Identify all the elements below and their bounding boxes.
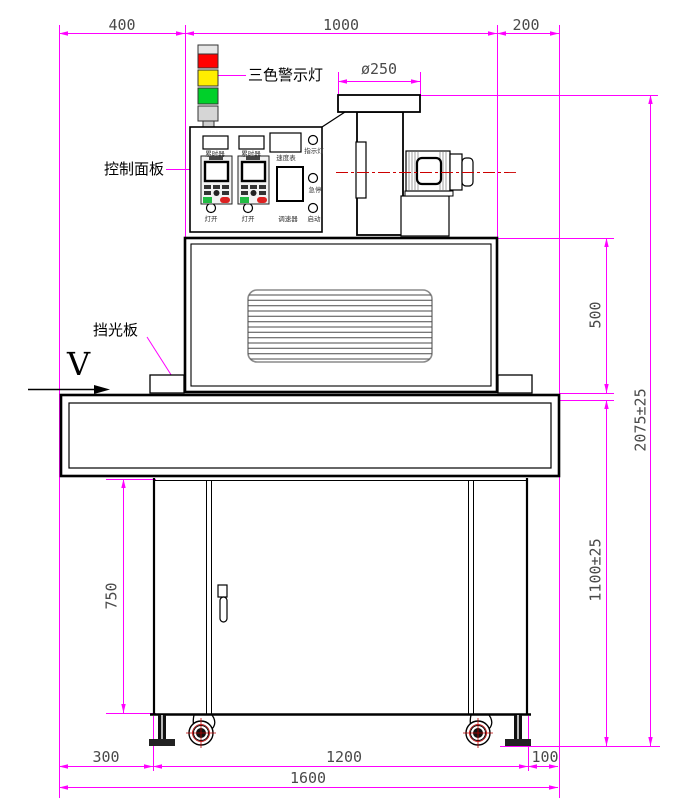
drawing-linework [0,0,673,805]
cabinet [150,478,531,715]
callout-control-panel: 控制面板 [104,161,164,178]
dim-top-right: 200 [512,18,539,33]
vfd-right [238,156,269,204]
dim-wheelbase: 1200 [326,750,362,765]
tower-red-segment [198,54,218,68]
motor [401,151,473,236]
door-lock [218,585,227,597]
conveyor-table [61,395,559,476]
conveyor-direction-arrow [28,385,110,394]
door-handle [220,597,227,622]
vfd-left [201,156,232,204]
engineering-drawing: 400 1000 200 ø250 500 2075±25 1100±25 75… [0,0,673,805]
blower-scroll-edge [322,112,345,127]
vent-grille [246,290,434,362]
label-governor: 调速器 [278,216,298,223]
caster-left [186,715,216,748]
dim-table-height: 1100±25 [589,538,604,601]
dim-total-width: 1600 [290,771,326,786]
dim-bottom-left: 300 [92,750,119,765]
label-lamp-left: 灯开 [205,216,218,223]
caster-right [463,715,493,748]
label-timer-right: 累时器 [241,151,261,158]
dim-duct-diameter: ø250 [361,62,397,77]
label-lamp-right: 灯开 [242,216,255,223]
duct-flange [338,95,420,112]
label-start: 启动 [308,216,321,223]
dim-top-middle: 1000 [323,18,359,33]
label-emergency-stop: 急停 [309,187,322,194]
motor-nameplate [417,158,441,184]
dim-bottom-right: 100 [531,750,558,765]
dim-cabinet-height: 750 [105,582,120,609]
motor-end-cap [462,158,473,186]
dim-top-left: 400 [108,18,135,33]
conveyor-speed-symbol: V [67,348,90,380]
tower-green-segment [198,88,218,104]
label-speed-meter: 速度表 [276,155,296,162]
tower-yellow-segment [198,70,218,86]
warning-light-tower [198,45,218,127]
callout-light-shield: 挡光板 [93,322,138,339]
dim-overall-height: 2075±25 [634,388,649,451]
motor-pedestal [401,196,449,236]
label-indicator: 指示灯 [304,148,324,155]
label-timer-left: 累时器 [205,151,225,158]
light-shield-left [150,375,184,393]
light-shield-right [498,375,532,393]
callout-warning-light: 三色警示灯 [248,67,323,84]
dim-oven-height: 500 [589,301,604,328]
